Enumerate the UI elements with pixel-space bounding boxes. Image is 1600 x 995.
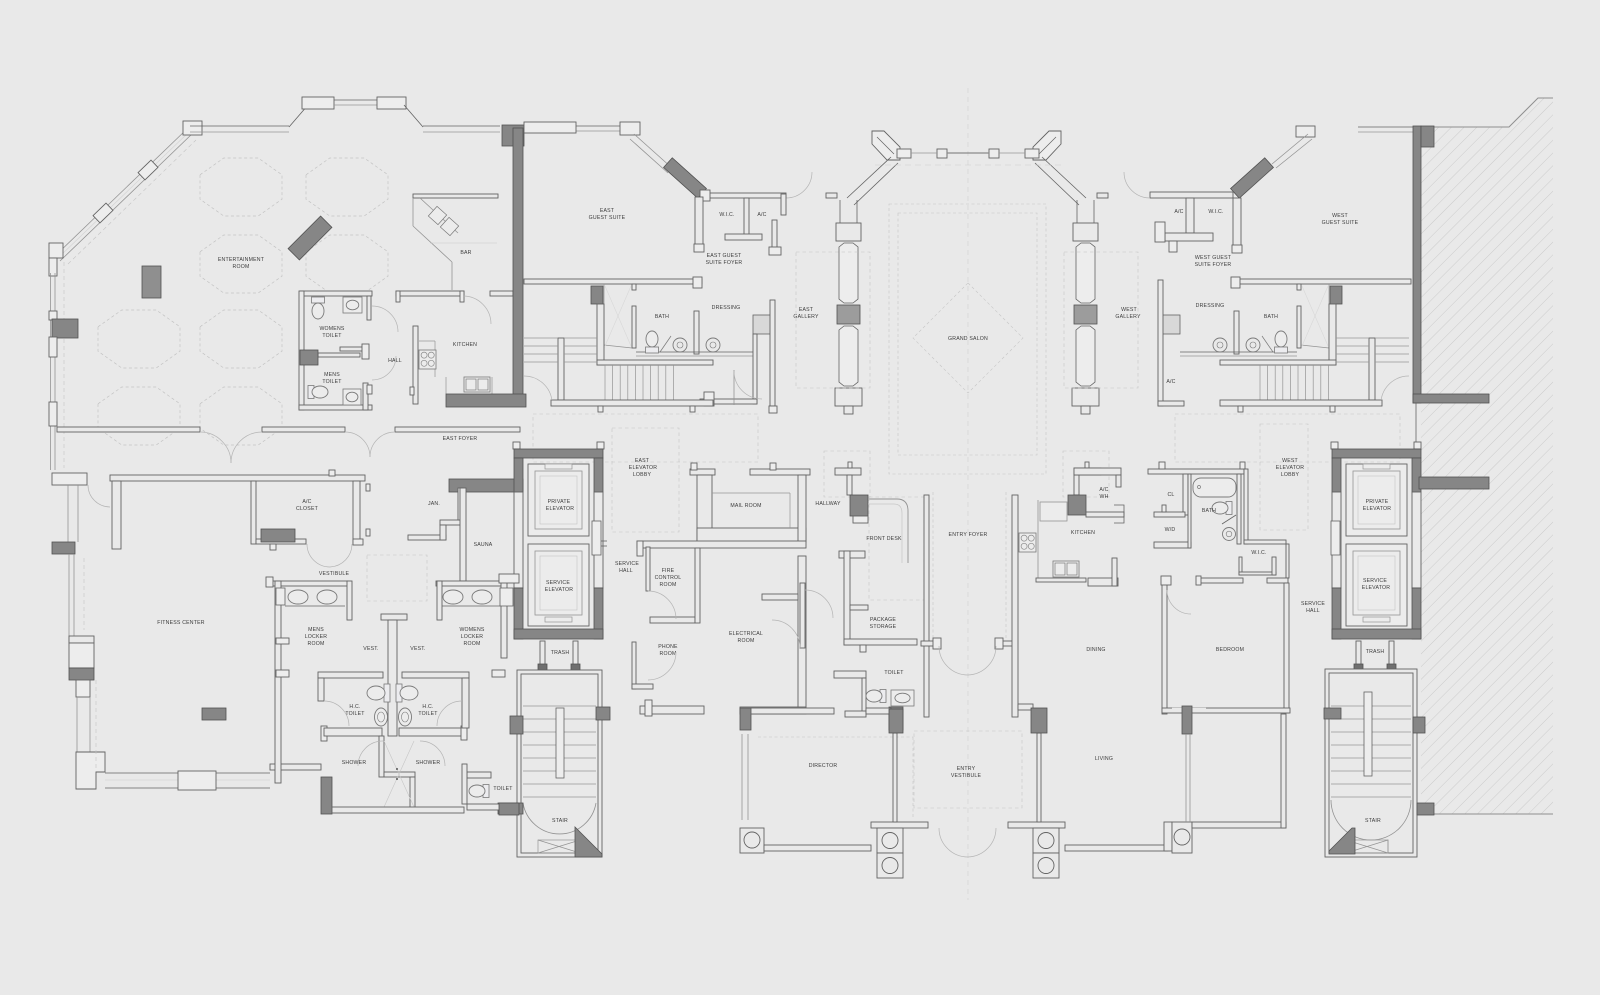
svg-text:ENTERTAINMENT: ENTERTAINMENT <box>218 257 265 263</box>
svg-text:LIVING: LIVING <box>1095 756 1113 762</box>
svg-text:HALL: HALL <box>619 568 633 574</box>
svg-text:SHOWER: SHOWER <box>342 760 367 766</box>
svg-text:ELEVATOR: ELEVATOR <box>546 506 574 512</box>
svg-text:WEST: WEST <box>1332 213 1348 219</box>
svg-text:WEST: WEST <box>1282 458 1298 464</box>
svg-text:DINING: DINING <box>1086 647 1105 653</box>
svg-text:GALLERY: GALLERY <box>1115 314 1141 320</box>
svg-text:ROOM: ROOM <box>660 651 677 657</box>
svg-text:EAST: EAST <box>635 458 650 464</box>
svg-text:DRESSING: DRESSING <box>712 305 741 311</box>
svg-text:CLOSET: CLOSET <box>296 506 319 512</box>
svg-text:A/C: A/C <box>1099 487 1108 493</box>
svg-text:WH: WH <box>1099 494 1108 500</box>
svg-text:STAIR: STAIR <box>552 818 568 824</box>
svg-text:SUITE FOYER: SUITE FOYER <box>1195 262 1232 268</box>
svg-text:EAST GUEST: EAST GUEST <box>707 253 742 259</box>
svg-text:BATH: BATH <box>1264 314 1278 320</box>
svg-text:SUITE FOYER: SUITE FOYER <box>706 260 743 266</box>
svg-text:WOMENS: WOMENS <box>459 627 484 633</box>
svg-text:TOILET: TOILET <box>322 379 342 385</box>
svg-text:ELEVATOR: ELEVATOR <box>629 465 657 471</box>
svg-text:TOILET: TOILET <box>884 670 904 676</box>
svg-text:MAIL ROOM: MAIL ROOM <box>730 503 761 509</box>
svg-text:A/C: A/C <box>302 499 311 505</box>
svg-text:SAUNA: SAUNA <box>474 542 493 548</box>
svg-text:BEDROOM: BEDROOM <box>1216 647 1244 653</box>
svg-text:ELEVATOR: ELEVATOR <box>1363 506 1391 512</box>
svg-text:GALLERY: GALLERY <box>793 314 819 320</box>
svg-text:KITCHEN: KITCHEN <box>453 342 477 348</box>
svg-text:PRIVATE: PRIVATE <box>1366 499 1389 505</box>
svg-text:GRAND SALON: GRAND SALON <box>948 336 988 342</box>
svg-text:TOILET: TOILET <box>322 333 342 339</box>
svg-text:SERVICE: SERVICE <box>546 580 570 586</box>
svg-text:CONTROL: CONTROL <box>655 575 682 581</box>
svg-text:A/C: A/C <box>1166 379 1175 385</box>
svg-text:MENS: MENS <box>324 372 340 378</box>
svg-text:ROOM: ROOM <box>660 582 677 588</box>
svg-text:ELEVATOR: ELEVATOR <box>545 587 573 593</box>
svg-text:ENTRY: ENTRY <box>957 766 976 772</box>
svg-text:H.C.: H.C. <box>422 704 433 710</box>
svg-text:ROOM: ROOM <box>738 638 755 644</box>
svg-text:VESTIBULE: VESTIBULE <box>319 571 350 577</box>
svg-text:LOBBY: LOBBY <box>1281 472 1300 478</box>
svg-text:CL: CL <box>1167 492 1174 498</box>
svg-text:W.I.C.: W.I.C. <box>719 212 734 218</box>
svg-text:ROOM: ROOM <box>308 641 325 647</box>
svg-text:LOCKER: LOCKER <box>305 634 328 640</box>
svg-text:EAST: EAST <box>799 307 814 313</box>
svg-text:JAN.: JAN. <box>428 501 440 507</box>
svg-text:DRESSING: DRESSING <box>1196 303 1225 309</box>
svg-text:STORAGE: STORAGE <box>870 624 897 630</box>
svg-text:WEST: WEST <box>1121 307 1137 313</box>
svg-text:GUEST SUITE: GUEST SUITE <box>589 215 626 221</box>
svg-text:BATH: BATH <box>1202 508 1216 514</box>
svg-text:BAR: BAR <box>460 250 471 256</box>
svg-text:SERVICE: SERVICE <box>1363 578 1387 584</box>
svg-text:KITCHEN: KITCHEN <box>1071 530 1095 536</box>
svg-text:STAIR: STAIR <box>1365 818 1381 824</box>
svg-text:EAST: EAST <box>600 208 615 214</box>
svg-text:A/C: A/C <box>1174 209 1183 215</box>
svg-text:TOILET: TOILET <box>418 711 438 717</box>
svg-text:VEST.: VEST. <box>410 646 425 652</box>
svg-text:PHONE: PHONE <box>658 644 678 650</box>
svg-text:LOCKER: LOCKER <box>461 634 484 640</box>
svg-text:TOILET: TOILET <box>493 786 513 792</box>
svg-text:FIRE: FIRE <box>662 568 675 574</box>
svg-text:BATH: BATH <box>655 314 669 320</box>
svg-text:HALLWAY: HALLWAY <box>815 501 841 507</box>
svg-text:ELEVATOR: ELEVATOR <box>1276 465 1304 471</box>
svg-text:WOMENS: WOMENS <box>319 326 344 332</box>
svg-text:EAST FOYER: EAST FOYER <box>443 436 478 442</box>
svg-text:A/C: A/C <box>757 212 766 218</box>
svg-text:W.I.C.: W.I.C. <box>1208 209 1223 215</box>
svg-text:ROOM: ROOM <box>464 641 481 647</box>
svg-text:MENS: MENS <box>308 627 324 633</box>
svg-text:PACKAGE: PACKAGE <box>870 617 896 623</box>
svg-text:SERVICE: SERVICE <box>615 561 639 567</box>
svg-text:FRONT DESK: FRONT DESK <box>866 536 902 542</box>
svg-text:W/D: W/D <box>1165 527 1176 533</box>
svg-text:W.I.C.: W.I.C. <box>1251 550 1266 556</box>
svg-text:HALL: HALL <box>1306 608 1320 614</box>
svg-text:TRASH: TRASH <box>551 650 570 656</box>
svg-text:WEST GUEST: WEST GUEST <box>1195 255 1232 261</box>
svg-text:ENTRY FOYER: ENTRY FOYER <box>949 532 988 538</box>
svg-text:VESTIBULE: VESTIBULE <box>951 773 982 779</box>
svg-text:GUEST SUITE: GUEST SUITE <box>1322 220 1359 226</box>
svg-text:SERVICE: SERVICE <box>1301 601 1325 607</box>
svg-text:VEST.: VEST. <box>363 646 378 652</box>
svg-text:PRIVATE: PRIVATE <box>548 499 571 505</box>
svg-text:TRASH: TRASH <box>1366 649 1385 655</box>
svg-text:ROOM: ROOM <box>233 264 250 270</box>
svg-text:DIRECTOR: DIRECTOR <box>809 763 838 769</box>
svg-text:TOILET: TOILET <box>345 711 365 717</box>
svg-text:ELECTRICAL: ELECTRICAL <box>729 631 763 637</box>
svg-text:ELEVATOR: ELEVATOR <box>1362 585 1390 591</box>
svg-text:FITNESS CENTER: FITNESS CENTER <box>157 620 205 626</box>
svg-text:LOBBY: LOBBY <box>633 472 652 478</box>
svg-text:SHOWER: SHOWER <box>416 760 441 766</box>
svg-text:H.C.: H.C. <box>349 704 360 710</box>
